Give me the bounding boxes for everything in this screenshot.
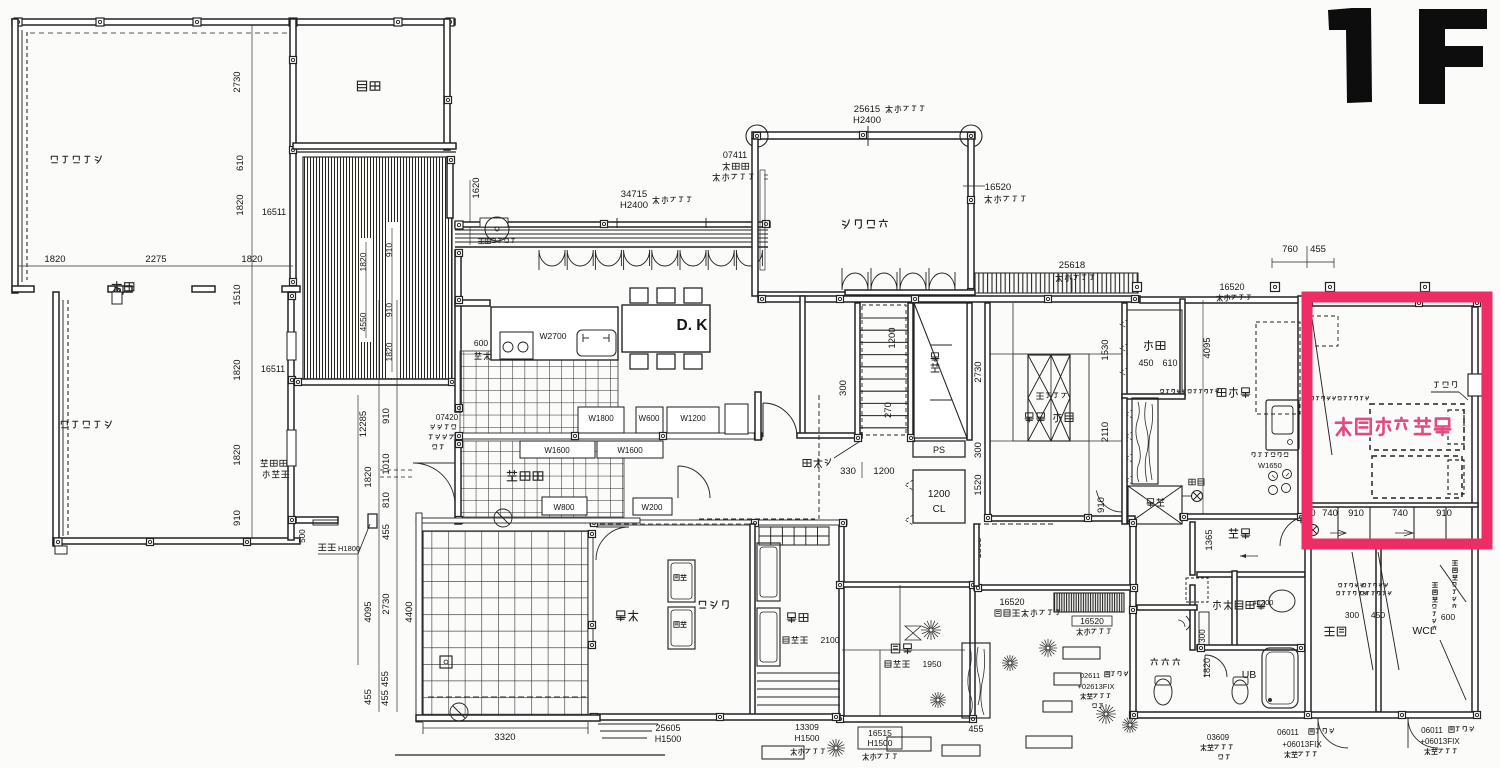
svg-text:330: 330: [840, 466, 856, 477]
svg-text:12285: 12285: [358, 411, 369, 437]
svg-text:1950: 1950: [923, 659, 942, 669]
svg-text:UB: UB: [1242, 669, 1257, 681]
svg-text:1820: 1820: [235, 194, 246, 215]
svg-text:PS: PS: [933, 445, 945, 455]
svg-text:1520: 1520: [973, 474, 984, 495]
svg-text:16511: 16511: [261, 364, 285, 374]
svg-text:34715: 34715: [621, 189, 647, 200]
svg-text:W600: W600: [639, 414, 660, 423]
svg-text:910: 910: [384, 303, 394, 317]
svg-text:H1500: H1500: [867, 738, 892, 748]
svg-text:450: 450: [1371, 610, 1385, 620]
svg-text:+02613FIX: +02613FIX: [1078, 682, 1115, 691]
svg-text:16520: 16520: [1080, 616, 1104, 626]
svg-text:600: 600: [474, 338, 488, 348]
svg-text:910: 910: [232, 510, 243, 526]
svg-text:1820: 1820: [44, 254, 65, 265]
svg-text:300: 300: [973, 442, 984, 458]
svg-text:3320: 3320: [494, 732, 515, 743]
svg-text:25605: 25605: [655, 723, 680, 733]
svg-text:16520: 16520: [999, 597, 1024, 607]
svg-text:13309: 13309: [795, 722, 819, 732]
svg-text:2275: 2275: [145, 254, 166, 265]
svg-text:1010: 1010: [381, 453, 392, 474]
svg-text:1620: 1620: [471, 177, 482, 198]
svg-text:1820: 1820: [232, 359, 243, 380]
svg-text:910: 910: [381, 408, 392, 424]
svg-text:610: 610: [1162, 358, 1177, 368]
svg-text:1200: 1200: [887, 327, 898, 348]
svg-text:#1200: #1200: [1253, 598, 1274, 607]
svg-text:2730: 2730: [973, 361, 984, 382]
svg-text:+06013FIX: +06013FIX: [1282, 740, 1322, 749]
svg-text:1820: 1820: [232, 444, 243, 465]
svg-text:H2400: H2400: [620, 200, 648, 211]
svg-text:16520: 16520: [1219, 282, 1244, 292]
svg-text:300: 300: [1345, 610, 1359, 620]
svg-text:2730: 2730: [232, 71, 243, 92]
svg-text:1820: 1820: [1202, 658, 1212, 678]
svg-text:W1600: W1600: [544, 446, 570, 455]
svg-text:455: 455: [1310, 244, 1326, 255]
svg-text:W1650: W1650: [1258, 461, 1282, 470]
svg-text:4550: 4550: [358, 312, 368, 331]
svg-text:740: 740: [1392, 508, 1408, 519]
svg-text:300: 300: [1198, 629, 1207, 643]
svg-text:610: 610: [235, 155, 246, 171]
svg-text:07411: 07411: [723, 150, 747, 160]
svg-text:06011: 06011: [1277, 728, 1299, 737]
svg-text:H1800: H1800: [338, 544, 360, 553]
svg-text:4095: 4095: [363, 601, 374, 622]
svg-text:W1200: W1200: [680, 414, 706, 423]
svg-text:4095: 4095: [1202, 337, 1213, 358]
svg-text:1820: 1820: [384, 342, 394, 361]
svg-text:W2700: W2700: [540, 331, 567, 341]
svg-text:H2400: H2400: [853, 115, 881, 126]
svg-text:CL: CL: [933, 504, 946, 515]
svg-text:1820: 1820: [363, 466, 374, 487]
svg-text:455: 455: [381, 524, 392, 540]
svg-text:2110: 2110: [1100, 422, 1111, 442]
svg-text:500: 500: [298, 529, 307, 543]
svg-text:760: 760: [1282, 244, 1298, 255]
svg-text:16511: 16511: [262, 207, 286, 217]
svg-text:270: 270: [883, 402, 894, 418]
svg-text:810: 810: [381, 492, 392, 508]
svg-text:455: 455: [380, 671, 391, 687]
svg-text:300: 300: [838, 380, 849, 396]
svg-text:2100: 2100: [821, 635, 840, 645]
svg-text:H1500: H1500: [655, 734, 682, 744]
svg-text:02611: 02611: [1080, 671, 1100, 680]
svg-text:+06013FIX: +06013FIX: [1420, 737, 1460, 746]
svg-text:455: 455: [380, 690, 391, 706]
svg-text:W1600: W1600: [617, 446, 643, 455]
svg-text:1365: 1365: [1204, 529, 1215, 550]
svg-text:07420: 07420: [436, 413, 459, 422]
svg-text:06011: 06011: [1421, 726, 1443, 735]
svg-text:600: 600: [1441, 612, 1455, 622]
svg-text:1200: 1200: [873, 466, 894, 477]
svg-text:D. K: D. K: [677, 317, 709, 334]
svg-text:16515: 16515: [868, 728, 892, 738]
svg-text:W1800: W1800: [588, 414, 614, 423]
svg-text:4400: 4400: [404, 601, 415, 622]
svg-text:1820: 1820: [358, 252, 368, 271]
svg-text:455: 455: [363, 689, 374, 705]
svg-text:W800: W800: [554, 503, 575, 512]
svg-text:1510: 1510: [232, 284, 243, 305]
svg-text:W200: W200: [642, 503, 663, 512]
svg-text:740: 740: [1322, 508, 1338, 519]
svg-text:2730: 2730: [381, 593, 392, 614]
svg-text:910: 910: [1436, 508, 1452, 519]
svg-text:16520: 16520: [985, 182, 1011, 193]
svg-text:450: 450: [1138, 358, 1153, 368]
svg-text:1530: 1530: [1100, 339, 1111, 360]
svg-text:H1500: H1500: [794, 733, 819, 743]
svg-text:910: 910: [384, 243, 394, 257]
svg-text:03609: 03609: [1207, 733, 1230, 742]
svg-text:25615: 25615: [854, 104, 880, 115]
svg-text:25618: 25618: [1059, 260, 1085, 271]
svg-text:455: 455: [968, 724, 983, 734]
svg-text:1200: 1200: [928, 489, 951, 500]
svg-text:910: 910: [1096, 497, 1107, 513]
svg-text:910: 910: [1348, 508, 1364, 519]
